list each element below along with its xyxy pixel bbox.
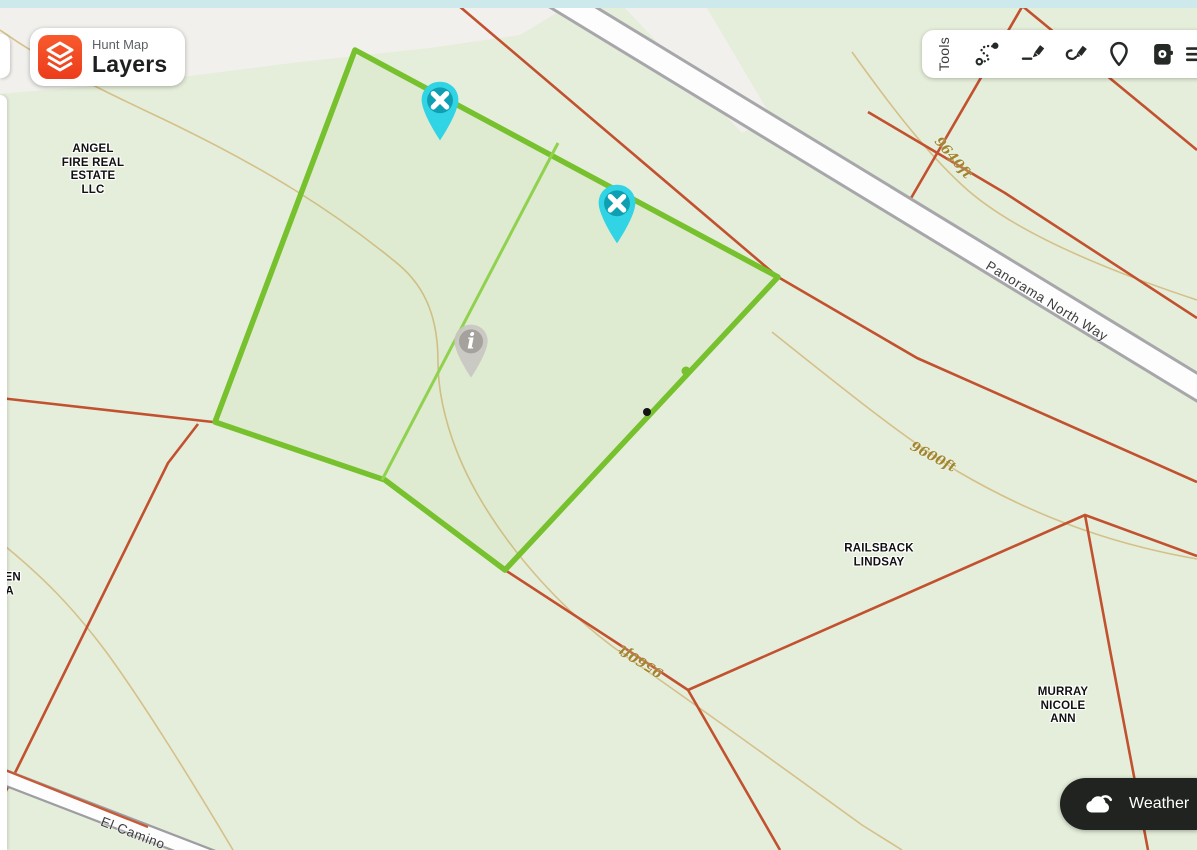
top-strip — [0, 0, 1197, 8]
waypoint-marker-1[interactable] — [419, 80, 461, 143]
black-point-marker[interactable] — [643, 408, 651, 416]
weather-button-label: Weather — [1129, 795, 1189, 813]
tools-label: Tools — [930, 30, 958, 78]
owner-label-angel-fire: ANGEL FIRE REAL ESTATE LLC — [62, 143, 125, 197]
owner-label-line: LLC — [62, 184, 125, 198]
tools-toolbar: Tools — [922, 30, 1197, 78]
waypoint-marker-2[interactable] — [596, 183, 638, 246]
side-panel-tab[interactable] — [0, 34, 10, 78]
owner-label-line: LINDSAY — [844, 556, 914, 570]
owner-label-line: ANGEL — [62, 143, 125, 157]
info-icon: i — [467, 329, 475, 354]
map-geometry — [0, 0, 1197, 850]
menu-icon[interactable] — [1186, 45, 1197, 63]
weather-cloud-icon — [1084, 791, 1116, 817]
layers-button-label: Layers — [92, 52, 167, 76]
weather-button[interactable]: Weather — [1060, 778, 1197, 830]
layers-button[interactable]: Hunt Map Layers — [30, 28, 185, 86]
route-draw-icon[interactable] — [974, 41, 1000, 67]
owner-label-railsback: RAILSBACK LINDSAY — [844, 543, 914, 570]
owner-label-line: NICOLE — [1038, 699, 1089, 713]
trail-camera-icon[interactable] — [1150, 41, 1176, 67]
owner-label-line: ESTATE — [62, 170, 125, 184]
owner-label-line: MURRAY — [1038, 686, 1089, 700]
collapsed-side-panel[interactable] — [0, 95, 7, 850]
pin-icon[interactable] — [1106, 41, 1132, 67]
info-marker[interactable]: i — [452, 323, 490, 380]
app-title: Hunt Map — [92, 38, 167, 52]
owner-label-line: ANN — [1038, 713, 1089, 727]
owner-label-murray: MURRAY NICOLE ANN — [1038, 686, 1089, 727]
draw-line-icon[interactable] — [1020, 41, 1046, 67]
owner-label-line: FIRE REAL — [62, 157, 125, 171]
boundary-vertex-dot[interactable] — [682, 367, 691, 376]
draw-shape-icon[interactable] — [1062, 41, 1088, 67]
layers-icon — [38, 35, 82, 79]
map-canvas[interactable]: ANGEL FIRE REAL ESTATE LLC RAILSBACK LIN… — [0, 0, 1197, 850]
owner-label-line: RAILSBACK — [844, 543, 914, 557]
tools-label-text: Tools — [936, 37, 952, 71]
